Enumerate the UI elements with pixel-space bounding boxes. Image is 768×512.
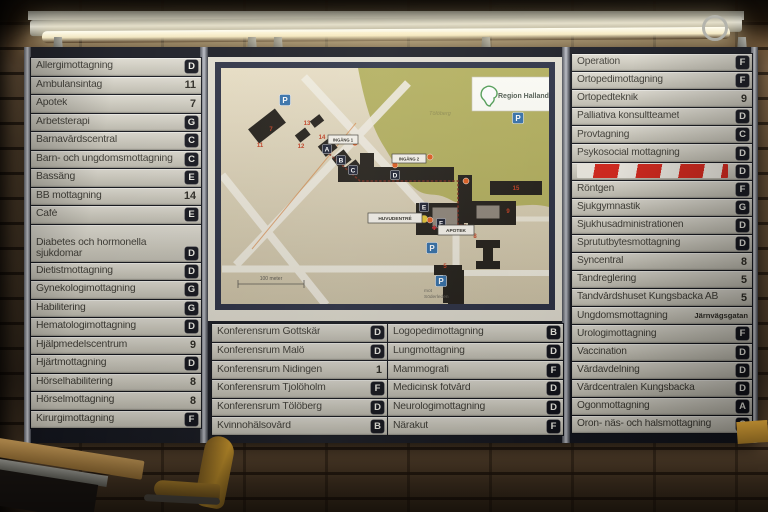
directory-row: SprututbytesmottagningD <box>572 235 752 252</box>
zone-letter-badge: B <box>371 420 384 433</box>
building-annex <box>476 205 500 219</box>
entry-label: Konferensrum Gottskär <box>217 327 320 338</box>
entry-label: Mammografi <box>393 365 449 376</box>
svg-text:INGÅNG 2: INGÅNG 2 <box>399 156 420 161</box>
building-number: 7 <box>190 98 196 110</box>
entry-label: Hematologimottagning <box>36 321 136 332</box>
zone-letter-badge: C <box>185 134 198 147</box>
entry-label: Hjälpmedelscentrum <box>36 340 127 351</box>
entry-label: Arbetsterapi <box>36 117 90 128</box>
entry-label: Habilitering <box>36 303 86 314</box>
entry-label: Provtagning <box>577 130 629 141</box>
scale-label: 100 meter <box>260 276 283 282</box>
road-note-line2: Söderleden <box>424 294 449 300</box>
building-number: 1 <box>376 364 382 376</box>
map-zone-letter: B <box>337 156 346 165</box>
zone-letter-badge: D <box>736 237 749 250</box>
entry-label: Palliativa konsultteamet <box>577 111 679 122</box>
directory-row: BarnavårdscentralC <box>31 132 201 150</box>
entry-label: Psykosocial mottagning <box>577 148 680 159</box>
parking-icon: P <box>427 243 438 254</box>
map-building-number: 13 <box>304 121 311 127</box>
directory-row: SjukhusadministrationenD <box>572 217 752 234</box>
directory-row: Vårdcentralen KungsbackaD <box>572 380 752 397</box>
road-note-line1: mot <box>424 288 433 294</box>
map-label-box: INGÅNG 2 <box>392 154 426 163</box>
entry-label: Röntgen <box>577 184 614 195</box>
directory-row: HjärtmottagningD <box>31 355 201 373</box>
zone-letter-badge: F <box>547 364 560 377</box>
zone-letter-badge: D <box>736 110 749 123</box>
zone-letter-badge: F <box>185 413 198 426</box>
building-number: 8 <box>190 376 196 388</box>
svg-text:P: P <box>515 114 521 123</box>
zone-letter-badge: F <box>736 74 749 87</box>
entrance-dot <box>427 154 433 160</box>
directory-row: NeurologimottagningD <box>388 399 563 417</box>
entry-label: Konferensrum Tölöberg <box>217 402 322 413</box>
table <box>0 444 134 512</box>
directory-row: SjukgymnastikG <box>572 199 752 216</box>
zone-letter-badge: D <box>547 401 560 414</box>
entry-label: Öron- näs- och halsmottagning <box>577 419 711 430</box>
map-zone-letter: A <box>323 145 332 154</box>
directory-row: ProvtagningC <box>572 126 752 143</box>
chair <box>146 438 250 512</box>
svg-text:P: P <box>282 96 288 105</box>
zone-letter-badge: D <box>185 60 198 73</box>
zone-letter-badge: D <box>736 165 749 178</box>
entry-label: Gynekologimottagning <box>36 284 135 295</box>
zone-letter-badge: D <box>371 345 384 358</box>
directory-row: ÖgonmottagningA <box>572 398 752 415</box>
entry-label: Ortopedteknik <box>577 93 638 104</box>
directory-row: Tandvårdshuset Kungsbacka AB5 <box>572 289 752 306</box>
zone-letter-badge: D <box>736 219 749 232</box>
region-halland-logo: Region Halland <box>472 77 554 111</box>
directory-row: Psykosocial mottagningD <box>572 144 752 161</box>
directory-row: HabiliteringG <box>31 300 201 318</box>
svg-text:APOTEK: APOTEK <box>446 228 467 234</box>
directory-row: UngdomsmottagningJärnvägsgatan <box>572 307 752 324</box>
zone-letter-badge: B <box>547 326 560 339</box>
entry-label: Urologimottagning <box>577 329 656 340</box>
entry-label: Sjukgymnastik <box>577 202 640 213</box>
zone-letter-badge: E <box>185 208 198 221</box>
zone-letter-badge: G <box>736 201 749 214</box>
location-note: Järnvägsgatan <box>694 311 748 320</box>
entry-label: Ögonmottagning <box>577 401 650 412</box>
entry-label: Tandreglering <box>577 274 636 285</box>
zone-letter-badge: D <box>185 357 198 370</box>
zone-letter-badge: C <box>185 153 198 166</box>
directory-row: D <box>572 163 752 180</box>
entry-label: Lungmottagning <box>393 346 465 357</box>
directory-list-right: OperationFOrtopedimottagningFOrtopedtekn… <box>571 53 753 434</box>
entry-label: Ambulansintag <box>36 80 102 91</box>
zone-letter-badge: D <box>736 364 749 377</box>
entry-label: Hörselmottagning <box>36 395 114 406</box>
directory-row: LogopedimottagningB <box>388 324 563 342</box>
zone-letter-badge: D <box>736 147 749 160</box>
entry-label: Logopedimottagning <box>393 327 484 338</box>
zone-letter-badge: G <box>185 283 198 296</box>
photo-scene: AllergimottagningDAmbulansintag11Apotek7… <box>0 0 768 512</box>
directory-row: UrologimottagningF <box>572 325 752 342</box>
directory-row: MammografiF <box>388 361 563 379</box>
directory-row: Barn- och ungdomsmottagningC <box>31 151 201 169</box>
entry-label: Diabetes och hormonella sjukdomar <box>36 238 185 260</box>
directory-row: AllergimottagningD <box>31 58 201 76</box>
logo-text: Region Halland <box>498 93 549 100</box>
site-map: Tölöberg <box>208 57 562 321</box>
directory-row: Tandreglering5 <box>572 271 752 288</box>
zone-letter-badge: F <box>736 183 749 196</box>
directory-row: Syncentral8 <box>572 253 752 270</box>
entry-label: Vårdcentralen Kungsbacka <box>577 383 695 394</box>
zone-letter-badge: D <box>185 247 198 260</box>
directory-row: VaccinationD <box>572 344 752 361</box>
directory-row: Öron- näs- och halsmottagningC <box>572 416 752 433</box>
entry-label: Konferensrum Tjolöholm <box>217 383 326 394</box>
zone-letter-badge: D <box>371 401 384 414</box>
building-number: 9 <box>741 93 747 105</box>
covered-label-tape <box>577 164 728 178</box>
zone-letter-badge: D <box>547 345 560 358</box>
parking-icon: P <box>436 276 447 287</box>
svg-text:B: B <box>339 158 344 165</box>
directory-row: Konferensrum TölöbergD <box>212 399 387 417</box>
directory-row: CaféE <box>31 206 201 224</box>
hospital-directory-sign: AllergimottagningDAmbulansintag11Apotek7… <box>24 47 758 443</box>
directory-row: Ortopedteknik9 <box>572 90 752 107</box>
directory-row: Konferensrum TjolöholmF <box>212 380 387 398</box>
directory-row: Hjälpmedelscentrum9 <box>31 337 201 355</box>
directory-row: BB mottagning14 <box>31 188 201 206</box>
directory-row: LungmottagningD <box>388 343 563 361</box>
zone-letter-badge: E <box>185 171 198 184</box>
directory-list-mid-right: LogopedimottagningBLungmottagningDMammog… <box>387 323 564 436</box>
map-zone-letter: E <box>420 203 429 212</box>
entry-label: Barn- och ungdomsmottagning <box>36 154 173 165</box>
map-zone-letter: C <box>349 166 358 175</box>
svg-text:P: P <box>429 244 435 253</box>
directory-row: Hörselhabilitering8 <box>31 374 201 392</box>
entry-label: Operation <box>577 57 620 68</box>
entry-label: Café <box>36 209 57 220</box>
directory-row: DietistmottagningD <box>31 263 201 281</box>
furniture-corner <box>736 420 768 444</box>
svg-text:A: A <box>325 147 330 154</box>
zone-letter-badge: D <box>736 382 749 395</box>
zone-letter-badge: F <box>371 382 384 395</box>
directory-row: BassängE <box>31 169 201 187</box>
building-number: 9 <box>190 339 196 351</box>
entry-label: Allergimottagning <box>36 61 113 72</box>
directory-row: GynekologimottagningG <box>31 281 201 299</box>
zone-letter-badge: C <box>736 128 749 141</box>
entrance-dot <box>427 217 433 223</box>
directory-row: OrtopedimottagningF <box>572 72 752 89</box>
directory-row: ArbetsterapiG <box>31 114 201 132</box>
directory-row: Ambulansintag11 <box>31 77 201 95</box>
directory-row: RöntgenF <box>572 181 752 198</box>
directory-row: VårdavdelningD <box>572 362 752 379</box>
building-number: 5 <box>741 274 747 286</box>
map-building-number: 15 <box>513 186 520 192</box>
building-number: 5 <box>741 292 747 304</box>
entry-label: Neurologimottagning <box>393 402 485 413</box>
zone-letter-badge: D <box>547 382 560 395</box>
zone-letter-badge: F <box>547 420 560 433</box>
entry-label: Närakut <box>393 421 428 432</box>
parking-icon: P <box>280 95 291 106</box>
directory-row: Konferensrum GottskärD <box>212 324 387 342</box>
directory-row: Medicinsk fotvårdD <box>388 380 563 398</box>
building-number: 11 <box>185 79 196 91</box>
lamp-cable-coil <box>702 15 728 41</box>
map-label-box: APOTEK <box>438 225 474 235</box>
svg-text:E: E <box>422 205 427 212</box>
entry-label: Sjukhusadministrationen <box>577 220 683 231</box>
entry-label: Kirurgimottagning <box>36 414 114 425</box>
entry-label: Sprututbytesmottagning <box>577 238 680 249</box>
building-number: 8 <box>741 256 747 268</box>
entry-label: Ungdomsmottagning <box>577 311 668 322</box>
zone-letter-badge: D <box>185 265 198 278</box>
map-building-number: 12 <box>298 144 305 150</box>
directory-row: Konferensrum MalöD <box>212 343 387 361</box>
map-building-number: 11 <box>257 143 264 149</box>
entry-label: Vaccination <box>577 347 627 358</box>
entry-label: Ortopedimottagning <box>577 75 663 86</box>
entry-label: Kvinnohälsovård <box>217 421 291 432</box>
directory-row: Apotek7 <box>31 95 201 113</box>
directory-row: OperationF <box>572 54 752 71</box>
directory-row: KirurgimottagningF <box>31 411 201 429</box>
entry-label: BB mottagning <box>36 191 102 202</box>
map-zone-letter: D <box>391 171 400 180</box>
entry-label: Barnavårdscentral <box>36 135 117 146</box>
map-label-box: HUVUDENTRÉ <box>368 213 422 223</box>
zone-letter-badge: F <box>736 56 749 69</box>
building-number: 8 <box>190 395 196 407</box>
directory-list-mid-left: Konferensrum GottskärDKonferensrum MalöD… <box>211 323 388 436</box>
zone-letter-badge: D <box>185 320 198 333</box>
directory-list-left: AllergimottagningDAmbulansintag11Apotek7… <box>30 57 202 429</box>
zone-letter-badge: G <box>185 302 198 315</box>
directory-row: Palliativa konsultteametD <box>572 108 752 125</box>
entry-label: Apotek <box>36 98 67 109</box>
hill-label: Tölöberg <box>429 111 452 117</box>
entry-label: Bassäng <box>36 172 75 183</box>
svg-text:P: P <box>438 277 444 286</box>
svg-text:INGÅNG 1: INGÅNG 1 <box>333 137 354 142</box>
directory-row: Hörselmottagning8 <box>31 392 201 410</box>
zone-letter-badge: A <box>736 400 749 413</box>
zone-letter-badge: F <box>736 327 749 340</box>
entrance-dot <box>463 178 469 184</box>
map-label-box: INGÅNG 1 <box>328 135 358 144</box>
entry-label: Konferensrum Malö <box>217 346 304 357</box>
entry-label: Tandvårdshuset Kungsbacka AB <box>577 292 718 303</box>
directory-row: HematologimottagningD <box>31 318 201 336</box>
entry-label: Hjärtmottagning <box>36 358 106 369</box>
entry-label: Medicinsk fotvård <box>393 383 470 394</box>
map-building-number: 14 <box>319 135 326 141</box>
svg-text:C: C <box>351 168 356 175</box>
directory-row: Konferensrum Nidingen1 <box>212 361 387 379</box>
svg-text:D: D <box>393 173 398 180</box>
zone-letter-badge: G <box>185 116 198 129</box>
directory-row: KvinnohälsovårdB <box>212 417 387 435</box>
parking-icon: P <box>513 113 524 124</box>
building-number: 14 <box>184 190 196 202</box>
pharmacy-cross-icon <box>434 226 436 231</box>
entry-label: Konferensrum Nidingen <box>217 365 322 376</box>
entry-label: Syncentral <box>577 256 623 267</box>
entry-label: Hörselhabilitering <box>36 377 113 388</box>
entry-label: Vårdavdelning <box>577 365 640 376</box>
entry-label: Dietistmottagning <box>36 266 113 277</box>
directory-row: Diabetes och hormonella sjukdomarD <box>31 225 201 262</box>
zone-letter-badge: D <box>736 346 749 359</box>
zone-letter-badge: D <box>371 326 384 339</box>
site-map-svg: Tölöberg <box>208 57 562 321</box>
directory-row: NärakutF <box>388 417 563 435</box>
